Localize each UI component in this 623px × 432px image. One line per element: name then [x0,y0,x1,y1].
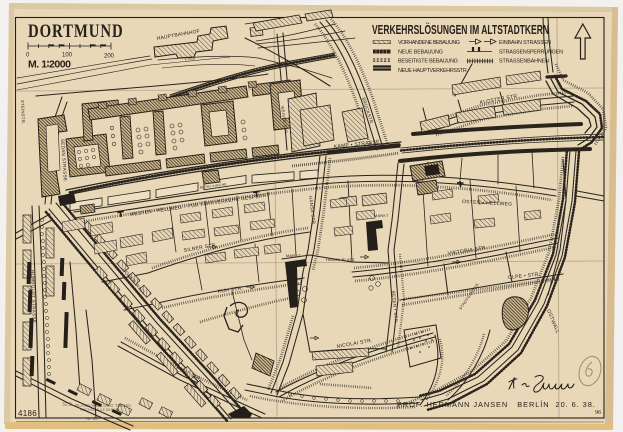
svg-text:PROF. HERMANN JANSEN BERLÍN: PROF. HERMANN JANSEN BERLÍN 20. 6. 38. [397,400,595,409]
svg-text:STRASSENSPERRUNGEN: STRASSENSPERRUNGEN [499,50,563,56]
svg-text:BESEITIGTE BEBAUUNG: BESEITIGTE BEBAUUNG [398,59,458,65]
svg-text:NEUE BEBAUUNG: NEUE BEBAUUNG [398,50,443,56]
svg-text:MARKT: MARKT [374,214,389,218]
svg-text:NEUE HAUPTVERKEHRSSTR.: NEUE HAUPTVERKEHRSSTR. [398,68,468,74]
svg-text:96: 96 [595,410,601,416]
svg-text:Nr. 23: Nr. 23 [86,416,98,421]
svg-text:32.9: 32.9 [62,402,72,408]
svg-text:EINBAHN STRASSEN: EINBAHN STRASSEN [499,40,551,46]
svg-text:4186: 4186 [18,409,37,418]
svg-text:200: 200 [104,54,115,60]
svg-text:HOCHSCHULE BERLIN: HOCHSCHULE BERLIN [80,408,120,412]
svg-text:VERKEHRSLÖSUNGEN IM ALTSTADTKE: VERKEHRSLÖSUNGEN IM ALTSTADTKERN [372,22,549,37]
svg-text:STEINSTR.: STEINSTR. [20,100,26,125]
svg-text:HANSA PLATZ: HANSA PLATZ [326,258,355,262]
svg-text:M. 1∶2000: M. 1∶2000 [28,59,71,71]
svg-text:VORHANDENE BEBAUUNG: VORHANDENE BEBAUUNG [398,40,460,46]
svg-text:STRASSENBAHNEN: STRASSENBAHNEN [499,59,549,65]
svg-text:DORTMUND: DORTMUND [28,20,124,41]
svg-text:MARKT: MARKT [286,254,301,258]
